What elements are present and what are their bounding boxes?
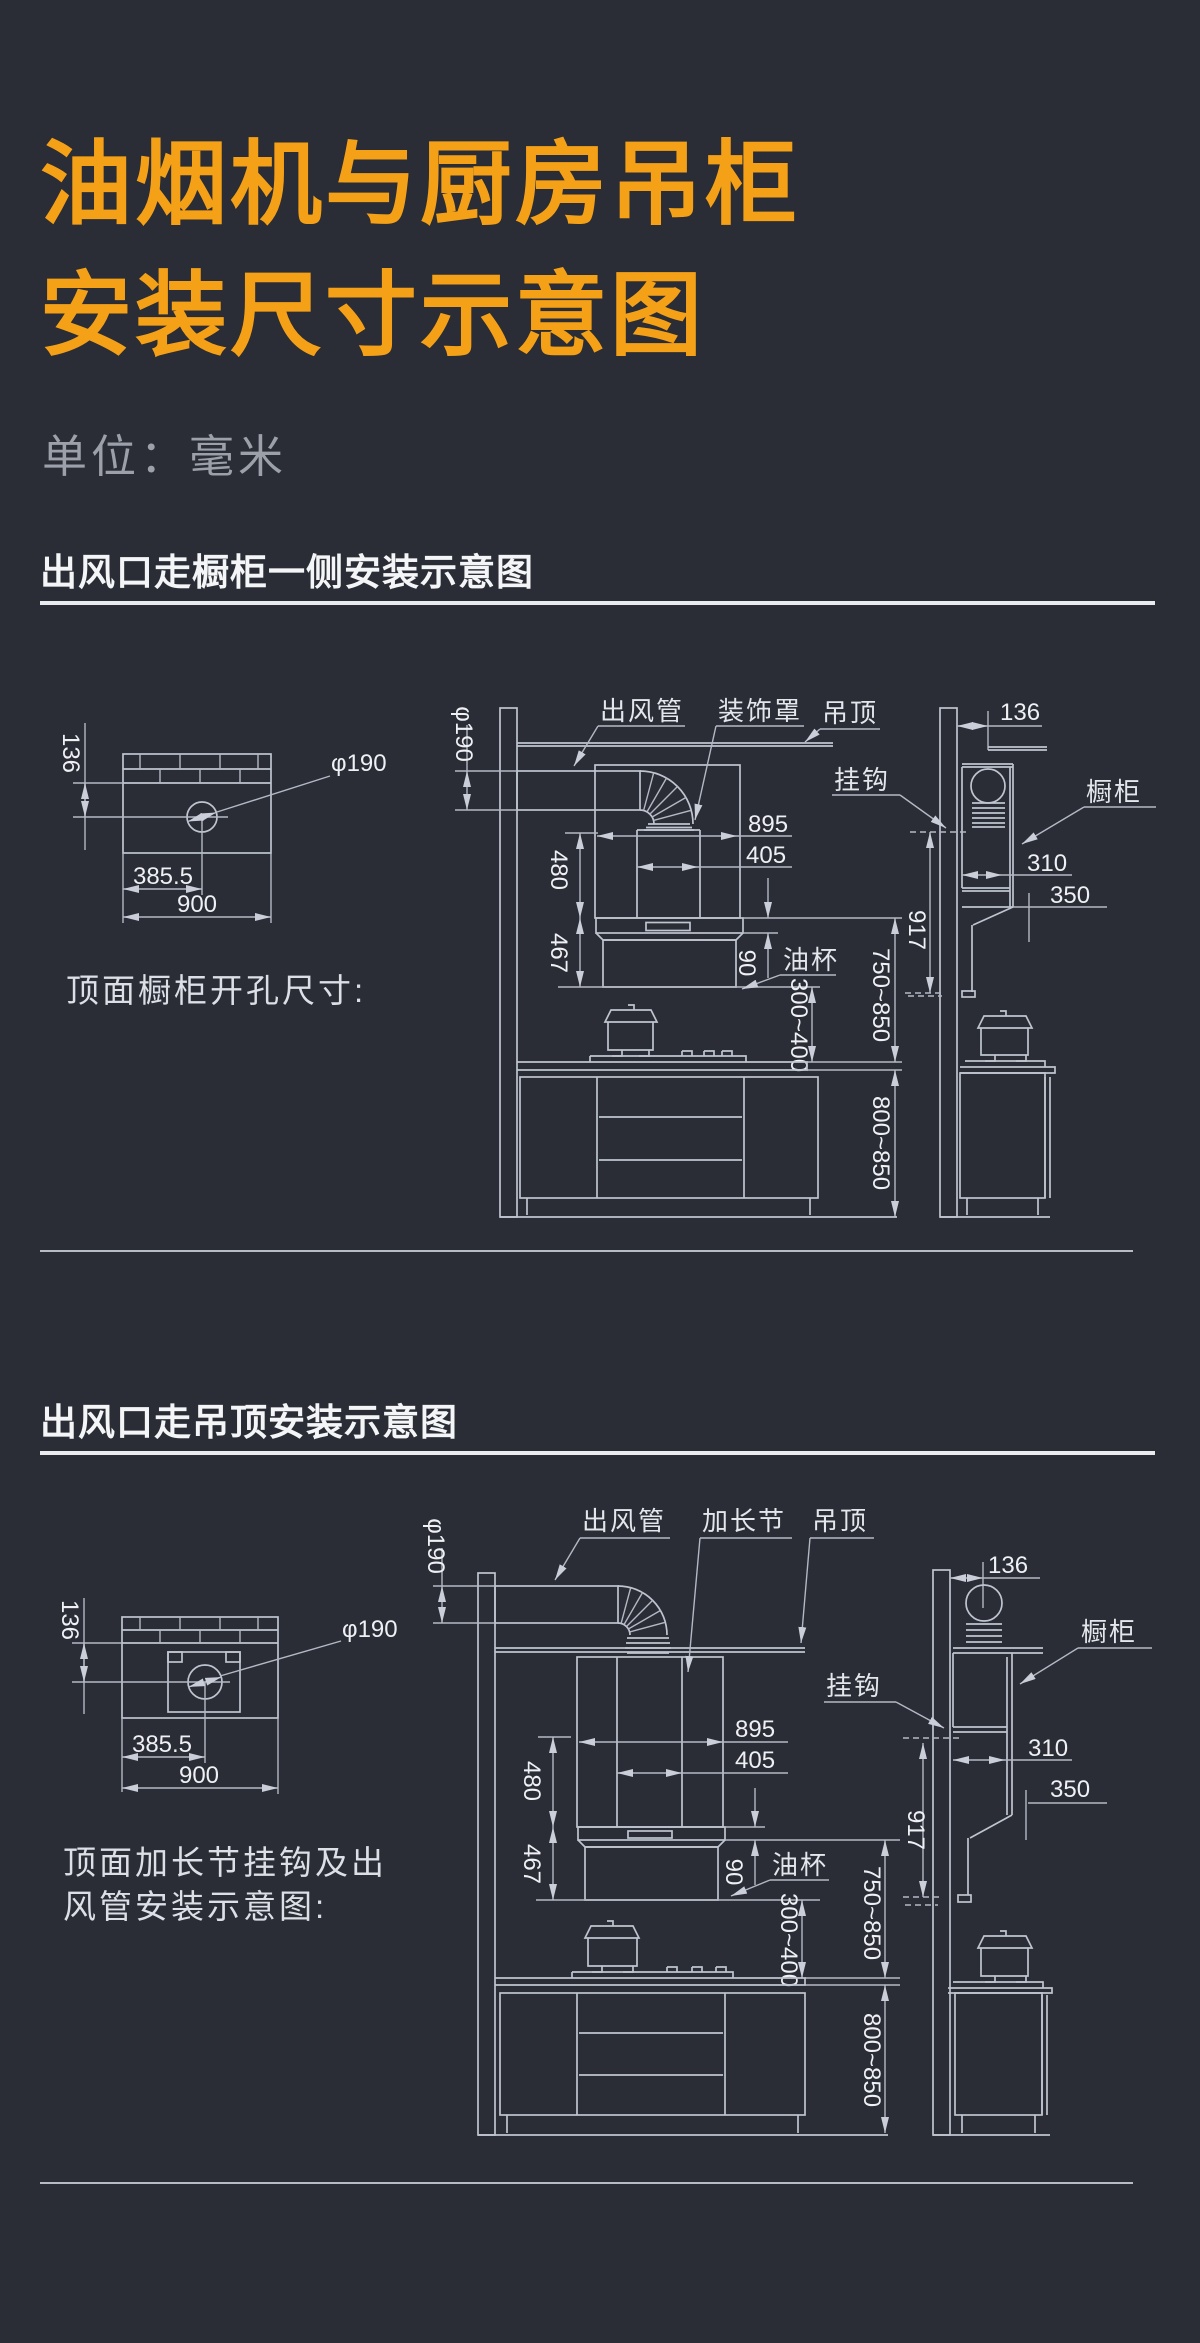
label-duct: 出风管 bbox=[582, 1506, 666, 1536]
section2-diagram: 136 385.5 900 φ190 顶面加长节挂钩及出 风管安装示意图: bbox=[0, 1500, 1200, 2160]
dim-counter-height: 800~850 bbox=[867, 1096, 894, 1190]
s1-side-base-cabinet bbox=[960, 1073, 1050, 1215]
dim-oilcup-height: 90 bbox=[733, 950, 760, 977]
s2-cooktop bbox=[495, 1921, 805, 1985]
section2-heading: 出风口走吊顶安装示意图 bbox=[40, 1392, 458, 1446]
dim-counter-height: 800~850 bbox=[858, 2013, 885, 2107]
label-extension: 加长节 bbox=[702, 1506, 786, 1536]
s1-base-cabinet bbox=[520, 1077, 818, 1215]
dim-cabinet-depth: 310 bbox=[1027, 850, 1067, 877]
section1-diagram: 136 385.5 900 φ190 顶面橱柜开孔尺寸: bbox=[0, 640, 1200, 1260]
s2-front-view: φ190 895 405 480 467 90 300~400 750~850 … bbox=[422, 1506, 900, 2135]
dim-pot-clearance: 300~400 bbox=[785, 978, 812, 1072]
dim-cabinet-top-width: 900 bbox=[177, 891, 217, 918]
s2-hood bbox=[578, 1827, 725, 1900]
section-divider-2 bbox=[40, 2182, 1133, 2184]
label-ceiling: 吊顶 bbox=[812, 1506, 868, 1536]
s2-caption-line1: 顶面加长节挂钩及出 bbox=[63, 1844, 387, 1881]
s1-topview-cabinet-hole: 136 385.5 900 φ190 顶面橱柜开孔尺寸: bbox=[57, 723, 387, 1009]
dim-hood-depth: 350 bbox=[1050, 882, 1090, 909]
s2-topview-opening: 136 385.5 900 φ190 顶面加长节挂钩及出 风管安装示意图: bbox=[56, 1598, 398, 1925]
dim-chimney-width: 405 bbox=[735, 1747, 775, 1774]
label-hook: 挂钩 bbox=[834, 765, 890, 795]
dim-hook-height: 917 bbox=[902, 1810, 929, 1850]
dim-duct-dia: φ190 bbox=[450, 706, 477, 762]
dim-hole-x: 385.5 bbox=[132, 1731, 192, 1758]
s1-decorative-cover bbox=[595, 765, 740, 918]
dim-oilcup-height: 90 bbox=[720, 1859, 747, 1886]
dim-hood-width: 895 bbox=[735, 1716, 775, 1743]
label-ceiling: 吊顶 bbox=[822, 698, 878, 728]
s2-side-cooktop bbox=[948, 1931, 1052, 1993]
page-title-line2: 安装尺寸示意图 bbox=[40, 251, 800, 382]
label-oil-cup: 油杯 bbox=[783, 945, 839, 975]
label-cabinet: 橱柜 bbox=[1086, 777, 1142, 807]
s2-caption-line2: 风管安装示意图: bbox=[63, 1888, 327, 1925]
s1-caption: 顶面橱柜开孔尺寸: bbox=[66, 972, 366, 1009]
section1-heading: 出风口走橱柜一侧安装示意图 bbox=[40, 542, 534, 596]
s2-flex-duct bbox=[495, 1586, 618, 1623]
dim-hook-height: 917 bbox=[903, 910, 930, 950]
label-hook: 挂钩 bbox=[826, 1671, 882, 1701]
label-cover: 装饰罩 bbox=[718, 696, 802, 726]
page-title: 油烟机与厨房吊柜 安装尺寸示意图 bbox=[40, 120, 800, 381]
infographic-page: 油烟机与厨房吊柜 安装尺寸示意图 单位：毫米 出风口走橱柜一侧安装示意图 bbox=[0, 0, 1200, 2343]
s2-side-cabinet bbox=[953, 1653, 1012, 1815]
dim-wall-to-duct: 136 bbox=[988, 1552, 1028, 1579]
label-cabinet: 橱柜 bbox=[1081, 1617, 1137, 1647]
dim-hood-depth: 350 bbox=[1050, 1776, 1090, 1803]
section2-heading-underline bbox=[40, 1451, 1155, 1455]
dim-hood-to-counter: 750~850 bbox=[867, 948, 894, 1042]
section-divider-1 bbox=[40, 1250, 1133, 1252]
section1-heading-underline bbox=[40, 601, 1155, 605]
dim-hood-width: 895 bbox=[748, 811, 788, 838]
dim-hood-to-counter: 750~850 bbox=[858, 1866, 885, 1960]
s2-side-hood bbox=[958, 1815, 1012, 1902]
dim-duct-dia: φ190 bbox=[422, 1518, 449, 1574]
dim-hole-x: 385.5 bbox=[133, 863, 193, 890]
unit-note: 单位：毫米 bbox=[42, 420, 287, 485]
dim-hole-dia: φ190 bbox=[331, 750, 387, 777]
dim-lower-height: 467 bbox=[545, 933, 572, 973]
label-duct: 出风管 bbox=[600, 696, 684, 726]
s1-hood bbox=[596, 918, 743, 987]
dim-chimney-width: 405 bbox=[746, 842, 786, 869]
dim-cabinet-top-width: 900 bbox=[179, 1762, 219, 1789]
dim-hole-offset: 136 bbox=[57, 733, 84, 773]
s1-cooktop bbox=[517, 1005, 807, 1070]
s2-base-cabinet bbox=[500, 1993, 805, 2133]
dim-hole-offset: 136 bbox=[56, 1600, 83, 1640]
s1-side-cooktop bbox=[960, 1010, 1055, 1073]
dim-wall-to-duct: 136 bbox=[1000, 699, 1040, 726]
dim-cabinet-depth: 310 bbox=[1028, 1735, 1068, 1762]
dim-upper-height: 480 bbox=[545, 850, 572, 890]
page-title-line1: 油烟机与厨房吊柜 bbox=[40, 120, 800, 251]
label-oil-cup: 油杯 bbox=[772, 1850, 828, 1880]
dim-lower-height: 467 bbox=[518, 1844, 545, 1884]
s2-side-base-cabinet bbox=[955, 1993, 1047, 2133]
s1-side-hood bbox=[962, 907, 1013, 997]
dim-hole-dia: φ190 bbox=[342, 1616, 398, 1643]
s1-flex-duct bbox=[517, 771, 640, 810]
dim-upper-height: 480 bbox=[518, 1761, 545, 1801]
s1-side-cabinet bbox=[962, 764, 1013, 907]
dim-pot-clearance: 300~400 bbox=[775, 1893, 802, 1987]
